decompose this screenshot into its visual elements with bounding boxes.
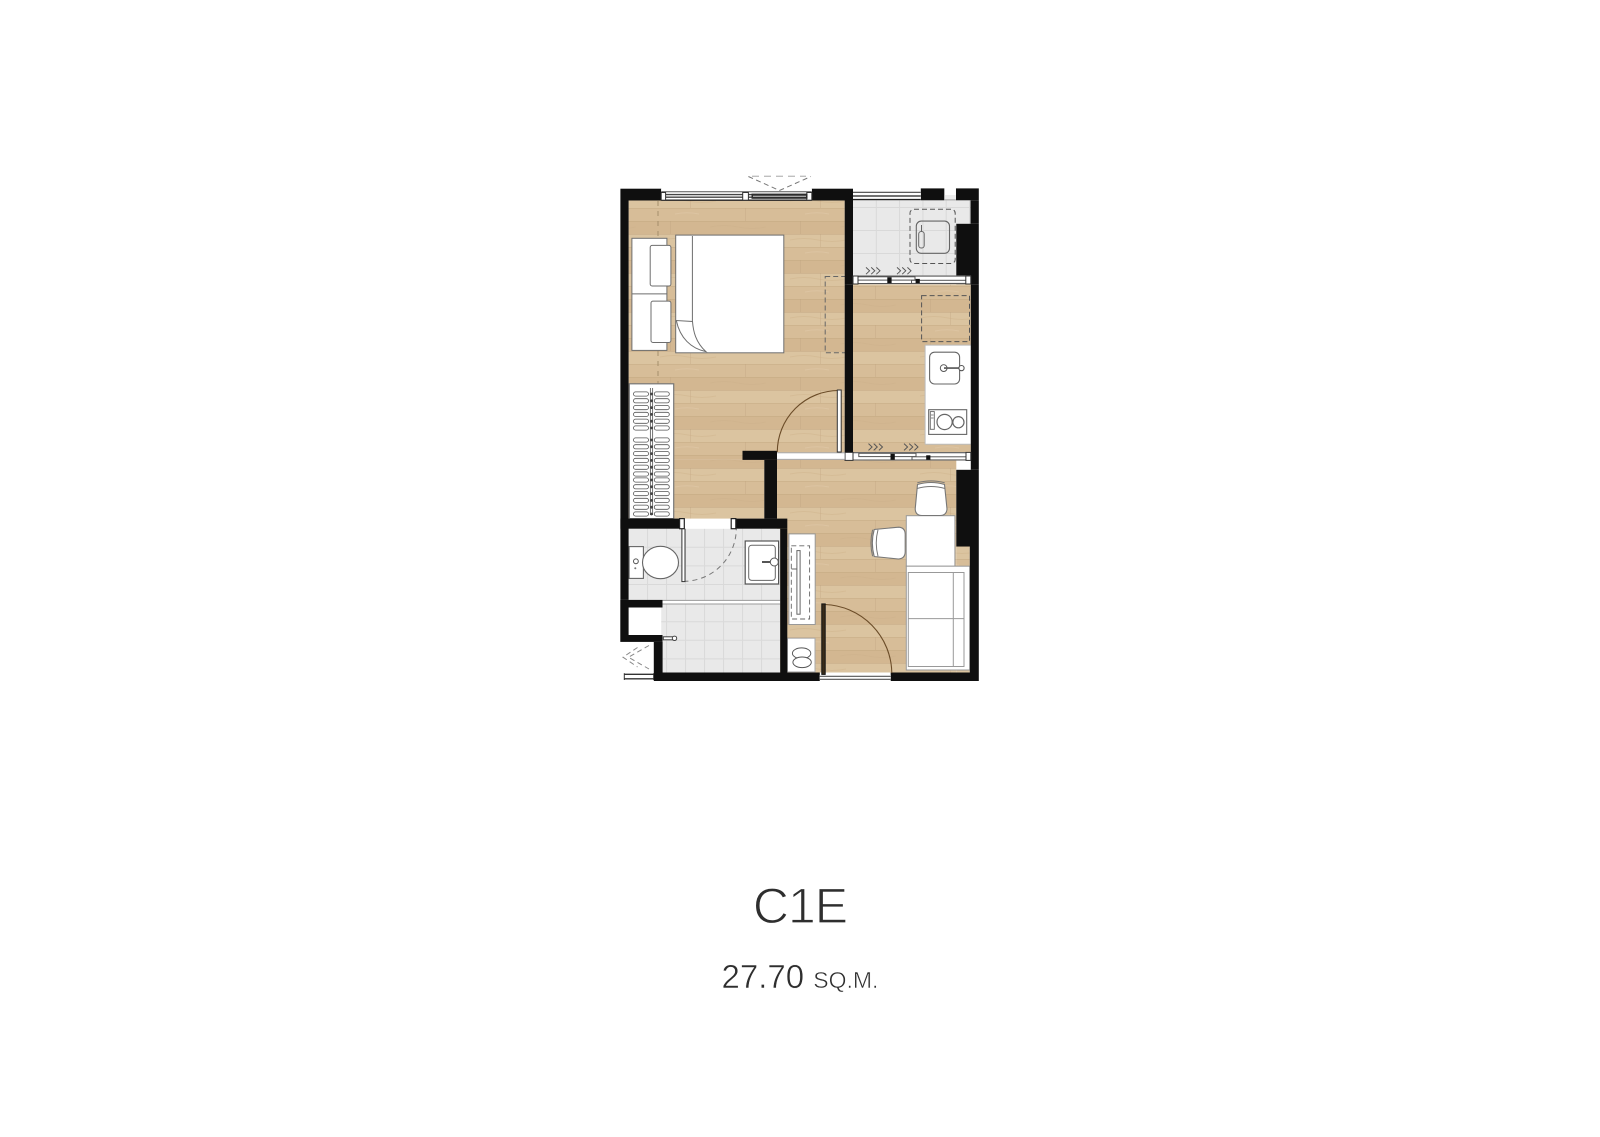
svg-text:C1E: C1E (753, 878, 847, 934)
svg-text:27.70 SQ.M.: 27.70 SQ.M. (722, 958, 879, 995)
